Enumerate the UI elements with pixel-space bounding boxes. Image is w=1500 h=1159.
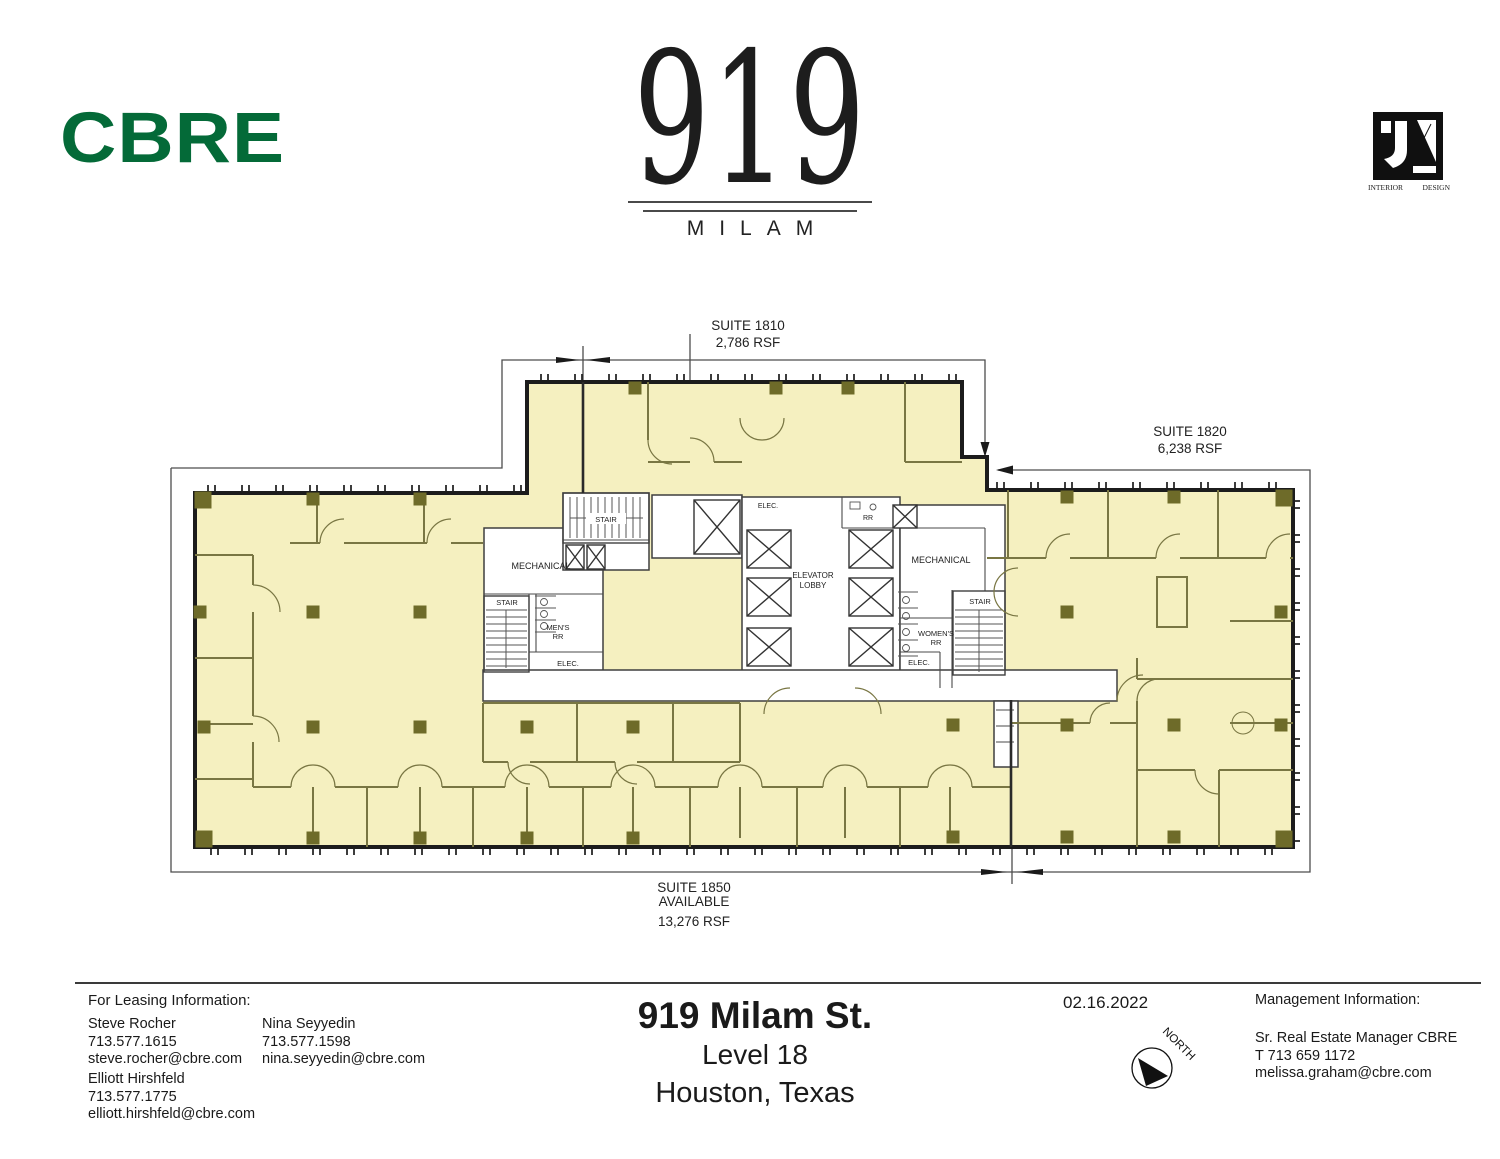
caption-interior: INTERIOR <box>1368 183 1403 192</box>
mens-rr-label-1: MEN'S <box>546 623 569 632</box>
rr-label: RR <box>863 515 873 522</box>
jl-logo-notch <box>1381 121 1391 133</box>
stair-right-label: STAIR <box>969 597 991 606</box>
contact-email: nina.seyyedin@cbre.com <box>262 1051 425 1069</box>
building-logo: 919 <box>555 40 945 198</box>
plan-title-address: 919 Milam St. <box>545 996 965 1036</box>
mechanical-right-label: MECHANICAL <box>911 555 970 565</box>
stair-left-label: STAIR <box>496 598 518 607</box>
contact-phone: 713.577.1775 <box>88 1089 255 1107</box>
stair-top-label: STAIR <box>595 515 617 524</box>
plan-date: 02.16.2022 <box>1063 993 1148 1013</box>
contact-elliott-hirshfeld: Elliott Hirshfeld 713.577.1775 elliott.h… <box>88 1071 255 1124</box>
elec-left-label: ELEC. <box>557 659 579 668</box>
north-arrow: NORTH <box>1120 1020 1215 1110</box>
floor-plan: MECHANICAL MECHANICAL ELEVATOR LOBBY STA… <box>0 300 1500 980</box>
management-line-role: Sr. Real Estate Manager CBRE <box>1255 1030 1457 1048</box>
contact-name: Elliott Hirshfeld <box>88 1071 255 1089</box>
interior-design-caption: INTERIOR DESIGN <box>1368 183 1450 192</box>
management-line-phone: T 713 659 1172 <box>1255 1048 1457 1066</box>
plan-title-level: Level 18 <box>545 1036 965 1074</box>
suite-1810-name: SUITE 1810 <box>711 318 785 333</box>
contact-phone: 713.577.1615 <box>88 1034 242 1052</box>
contact-phone: 713.577.1598 <box>262 1034 425 1052</box>
suite-1820-rsf: 6,238 RSF <box>1158 441 1223 456</box>
womens-rr-label-2: RR <box>931 638 942 647</box>
suite-1850-name: SUITE 1850 <box>657 880 731 895</box>
contact-nina-seyyedin: Nina Seyyedin 713.577.1598 nina.seyyedin… <box>262 1016 425 1069</box>
suite-1820-name: SUITE 1820 <box>1153 424 1227 439</box>
elec-top-label: ELEC. <box>758 503 778 510</box>
north-arrow-pointer <box>1138 1058 1168 1086</box>
building-logo-rule-bottom <box>643 210 857 212</box>
contact-steve-rocher: Steve Rocher 713.577.1615 steve.rocher@c… <box>88 1016 242 1069</box>
building-logo-number: 919 <box>621 40 878 198</box>
caption-design: DESIGN <box>1423 183 1451 192</box>
elevator-lobby-label-2: LOBBY <box>800 581 827 590</box>
management-heading: Management Information: <box>1255 992 1420 1008</box>
plan-title: 919 Milam St. Level 18 Houston, Texas <box>545 996 965 1112</box>
north-arrow-label: NORTH <box>1160 1026 1197 1063</box>
management-info: Sr. Real Estate Manager CBRE T 713 659 1… <box>1255 1030 1457 1083</box>
interior-design-logo <box>1373 112 1443 180</box>
suite-1810-rsf: 2,786 RSF <box>716 335 781 350</box>
mechanical-left-label: MECHANICAL <box>511 561 570 571</box>
contact-name: Steve Rocher <box>88 1016 242 1034</box>
jl-logo-foot <box>1413 166 1436 173</box>
plan-title-city: Houston, Texas <box>545 1074 965 1112</box>
cbre-logo: CBRE <box>60 96 285 180</box>
building-logo-name: MILAM <box>555 217 945 241</box>
footer-divider <box>75 982 1481 984</box>
contact-name: Nina Seyyedin <box>262 1016 425 1034</box>
elevator-lobby-label-1: ELEVATOR <box>792 571 834 580</box>
mens-rr-label-2: RR <box>553 632 564 641</box>
suite-1850-status: AVAILABLE <box>659 894 730 909</box>
building-logo-rule-top <box>628 201 872 203</box>
contact-email: steve.rocher@cbre.com <box>88 1051 242 1069</box>
elec-right-label: ELEC. <box>908 658 930 667</box>
contact-email: elliott.hirshfeld@cbre.com <box>88 1106 255 1124</box>
womens-rr-label-1: WOMEN'S <box>918 629 954 638</box>
suite-1850-rsf: 13,276 RSF <box>658 914 730 929</box>
management-line-email: melissa.graham@cbre.com <box>1255 1065 1457 1083</box>
leasing-heading: For Leasing Information: <box>88 992 251 1009</box>
